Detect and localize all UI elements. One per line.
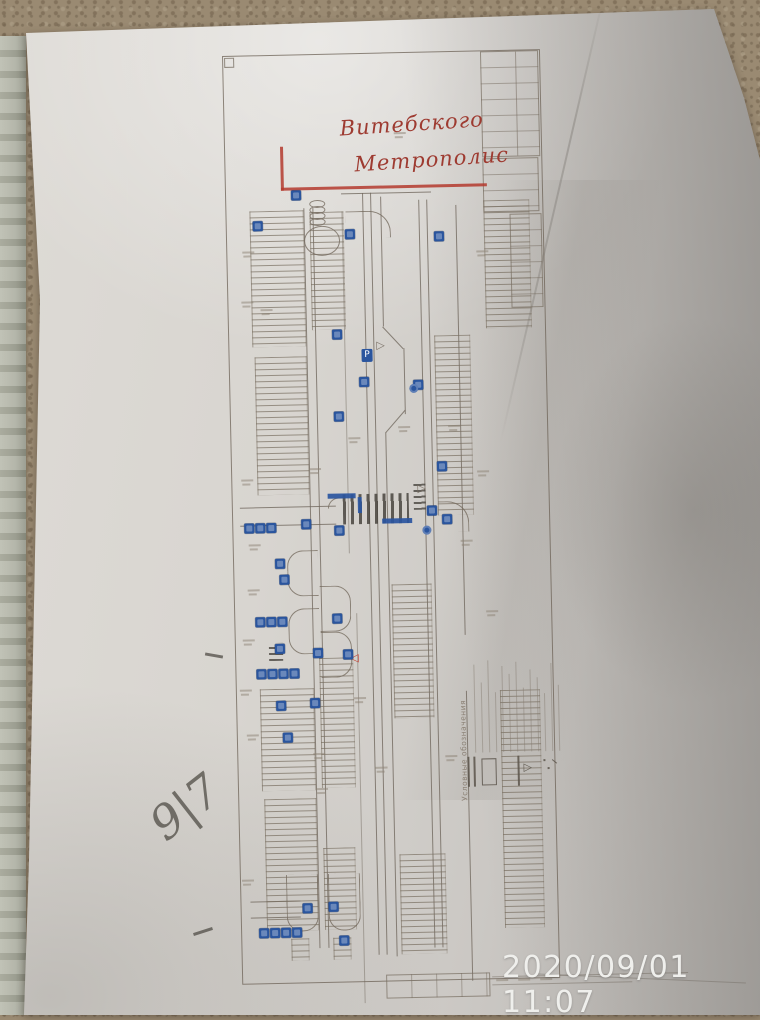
drawing-annotations bbox=[222, 49, 583, 1006]
annotation-text-mark bbox=[250, 548, 258, 550]
annotation-text-mark bbox=[242, 879, 254, 881]
bottom-stamp-table bbox=[386, 972, 490, 998]
annotation-text-mark bbox=[477, 470, 489, 472]
camera-timestamp: 2020/09/01 11:07 bbox=[502, 950, 760, 1020]
annotation-text-mark bbox=[241, 301, 253, 303]
legend-text-line bbox=[481, 682, 484, 752]
annotation-text-mark bbox=[242, 251, 254, 253]
annotation-text-mark bbox=[310, 472, 318, 474]
annotation-text-mark bbox=[477, 254, 485, 256]
legend-text-line bbox=[544, 693, 546, 751]
annotation-text-mark bbox=[354, 697, 366, 699]
annotation-text-mark bbox=[243, 884, 251, 886]
annotation-text-mark bbox=[317, 792, 325, 794]
annotation-text-mark bbox=[349, 441, 357, 443]
legend-dot bbox=[548, 767, 550, 769]
legend-text-line bbox=[473, 665, 476, 753]
paper-sheet-wrap: 9|7 Витебского Метрополис bbox=[0, 0, 760, 1015]
annotation-text-mark bbox=[247, 734, 259, 736]
pencil-dash-mark bbox=[205, 652, 223, 658]
legend-text-line bbox=[550, 663, 553, 751]
annotation-text-mark bbox=[242, 305, 250, 307]
annotation-text-mark bbox=[242, 483, 250, 485]
annotation-text-mark bbox=[448, 425, 460, 427]
annotation-text-mark bbox=[399, 430, 407, 432]
legend-text-line bbox=[515, 662, 518, 752]
annotation-text-mark bbox=[243, 255, 251, 257]
annotation-text-mark bbox=[313, 753, 325, 755]
annotation-text-mark bbox=[478, 474, 486, 476]
annotation-text-mark bbox=[244, 643, 252, 645]
legend-text-line bbox=[495, 692, 497, 752]
handwritten-page-note: 9|7 bbox=[139, 763, 231, 851]
annotation-text-mark bbox=[249, 544, 261, 546]
annotation-text-mark bbox=[262, 313, 270, 315]
drawing-layer: Витебского Метрополис bbox=[222, 49, 583, 1006]
legend-text-line bbox=[509, 674, 512, 752]
annotation-text-mark bbox=[355, 701, 363, 703]
annotation-text-mark bbox=[241, 479, 253, 481]
annotation-text-mark bbox=[348, 437, 360, 439]
annotation-text-mark bbox=[487, 614, 495, 616]
annotation-text-mark bbox=[249, 593, 257, 595]
annotation-text-mark bbox=[394, 132, 406, 134]
paper-sheet: 9|7 Витебского Метрополис bbox=[0, 0, 760, 1015]
annotation-text-mark bbox=[377, 771, 385, 773]
legend-text-line bbox=[523, 688, 525, 752]
annotation-text-mark bbox=[243, 639, 255, 641]
annotation-text-mark bbox=[316, 788, 328, 790]
annotation-text-mark bbox=[446, 759, 454, 761]
legend-sign-symbol-icon: ▷ bbox=[523, 761, 532, 772]
annotation-text-mark bbox=[398, 426, 410, 428]
annotation-text-mark bbox=[248, 738, 256, 740]
legend-text-line bbox=[529, 669, 532, 751]
annotation-text-mark bbox=[314, 757, 322, 759]
annotation-text-mark bbox=[376, 767, 388, 769]
annotation-text-mark bbox=[240, 690, 252, 692]
annotation-text-mark bbox=[395, 136, 403, 138]
legend-text-line bbox=[558, 685, 560, 751]
annotation-text-mark bbox=[248, 589, 260, 591]
legend-text-line bbox=[487, 660, 490, 752]
annotation-text-mark bbox=[461, 540, 473, 542]
annotation-text-mark bbox=[462, 544, 470, 546]
legend-symbol-rect bbox=[481, 758, 497, 785]
annotation-text-mark bbox=[309, 468, 321, 470]
annotation-text-mark bbox=[449, 429, 457, 431]
legend-text-line bbox=[501, 666, 504, 752]
annotation-text-mark bbox=[476, 250, 488, 252]
pencil-dash-mark bbox=[193, 927, 213, 936]
annotation-text-mark bbox=[486, 610, 498, 612]
legend-dot bbox=[543, 759, 545, 761]
annotation-text-mark bbox=[261, 309, 273, 311]
annotation-text-mark bbox=[241, 694, 249, 696]
annotation-text-mark bbox=[445, 755, 457, 757]
legend-text-line bbox=[537, 677, 540, 751]
